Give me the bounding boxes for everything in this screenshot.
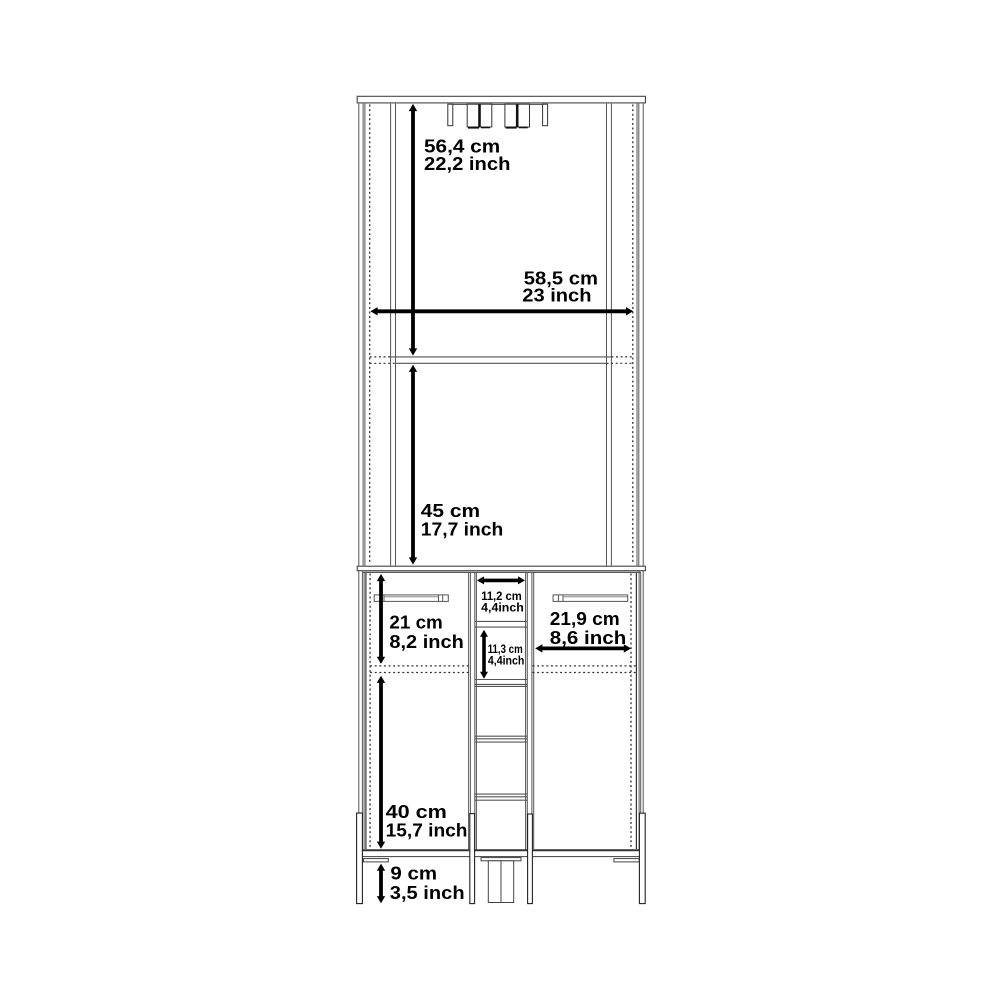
svg-text:15,7 inch: 15,7 inch bbox=[386, 819, 468, 840]
svg-text:4,4inch: 4,4inch bbox=[488, 653, 525, 667]
svg-text:3,5 inch: 3,5 inch bbox=[390, 882, 465, 903]
svg-text:8,2 inch: 8,2 inch bbox=[389, 631, 463, 652]
svg-text:8,6 inch: 8,6 inch bbox=[550, 627, 627, 648]
svg-text:4,4inch: 4,4inch bbox=[481, 600, 524, 614]
svg-text:21 cm: 21 cm bbox=[389, 612, 442, 633]
svg-text:22,2 inch: 22,2 inch bbox=[424, 153, 510, 174]
svg-text:23 inch: 23 inch bbox=[522, 284, 591, 305]
svg-text:9 cm: 9 cm bbox=[390, 863, 437, 884]
svg-text:17,7 inch: 17,7 inch bbox=[421, 518, 504, 539]
